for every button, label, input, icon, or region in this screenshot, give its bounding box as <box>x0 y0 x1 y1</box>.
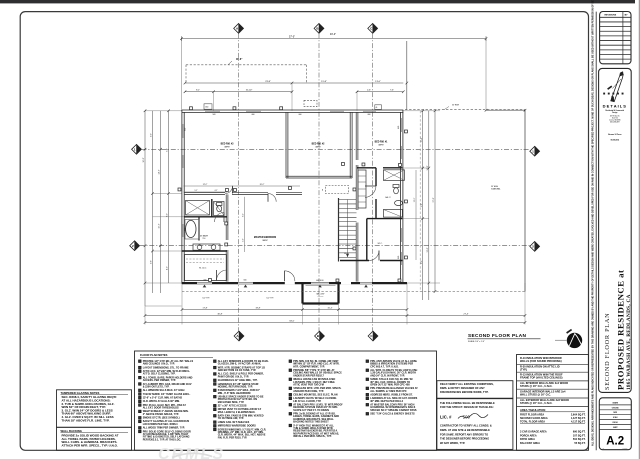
svg-text:4,117 SQ.FT.: 4,117 SQ.FT. <box>571 421 586 424</box>
svg-text:8'-2": 8'-2" <box>167 213 169 217</box>
svg-text:TAMPERED GLAZING NOTES: TAMPERED GLAZING NOTES <box>61 391 100 395</box>
svg-text:27'-4": 27'-4" <box>464 313 469 315</box>
svg-text:13'-6": 13'-6" <box>427 247 429 252</box>
svg-text:22" x 30" ATTIC ACCESS: 22" x 30" ATTIC ACCESS <box>218 405 247 408</box>
svg-text:ATTIC VENT PER 750 CFM: ATTIC VENT PER 750 CFM <box>293 383 324 386</box>
svg-text:2,664 SQ.FT.: 2,664 SQ.FT. <box>571 413 586 416</box>
svg-text:ALL WINDOW SILLS MAX. 44" HIGH: ALL WINDOW SILLS MAX. 44" HIGH <box>143 389 185 392</box>
svg-text:36" MIN. DEPTH PER R311.3: 36" MIN. DEPTH PER R311.3 <box>370 400 403 403</box>
svg-text:W.I.C.: W.I.C. <box>378 243 383 245</box>
svg-text:NOSING, RETURN ENDS, TYP.: NOSING, RETURN ENDS, TYP. <box>218 385 253 388</box>
svg-text:PATIO AREA: PATIO AREA <box>520 438 535 441</box>
svg-text:CLR. WIDTH AT HALLS 36" MIN.: CLR. WIDTH AT HALLS 36" MIN. <box>143 400 180 403</box>
svg-text:4'-2": 4'-2" <box>167 266 169 270</box>
svg-text:AND CEILINGS U.N.O., TYP.: AND CEILINGS U.N.O., TYP. <box>143 363 175 366</box>
svg-text:10'-8": 10'-8" <box>143 157 145 162</box>
svg-text:M. CLO.: M. CLO. <box>199 268 207 270</box>
svg-text:14'-2": 14'-2" <box>159 169 161 174</box>
svg-text:5'-6": 5'-6" <box>243 238 245 242</box>
svg-text:UNDER STAIR PER R302.7: UNDER STAIR PER R302.7 <box>293 374 324 377</box>
svg-text:ALL WOOD TRIM PER OWNER, TYP.: ALL WOOD TRIM PER OWNER, TYP. <box>143 427 185 430</box>
svg-text:INSTALL PER MFR. SPECS., TYP.: INSTALL PER MFR. SPECS., TYP. <box>293 435 332 438</box>
svg-text:PORCH AREA: PORCH AREA <box>520 434 537 437</box>
svg-text:LID AT EA. FLOOR, TYP.: LID AT EA. FLOOR, TYP. <box>293 400 321 403</box>
svg-text:AND BOTTOM 1/3 OF TANK, TYP.: AND BOTTOM 1/3 OF TANK, TYP. <box>218 369 257 372</box>
svg-text:BACKING NOTES THIS SHEET: BACKING NOTES THIS SHEET <box>293 421 329 424</box>
svg-text:7'-6": 7'-6" <box>390 90 394 92</box>
svg-text:46'-0": 46'-0" <box>330 34 336 36</box>
svg-text:16'-1/2": 16'-1/2" <box>246 90 253 92</box>
svg-text:TOTAL FLOOR AREA: TOTAL FLOOR AREA <box>520 421 545 424</box>
svg-text:FIRST FLOOR AREA: FIRST FLOOR AREA <box>520 413 544 416</box>
svg-text:REVISIONS: REVISIONS <box>605 15 617 17</box>
svg-text:TUB W/ SHWR. 1/4" TEMP. GLASS: TUB W/ SHWR. 1/4" TEMP. GLASS ENCL. <box>143 393 191 396</box>
svg-text:84'-0": 84'-0" <box>290 320 295 322</box>
svg-text:A.2: A.2 <box>606 436 624 448</box>
svg-text:55 SQ.FT.: 55 SQ.FT. <box>574 442 585 445</box>
svg-text:PER R302.5.1, TYP. AT THIS LOC: PER R302.5.1, TYP. AT THIS LOC. <box>143 438 182 441</box>
svg-text:30'-8": 30'-8" <box>218 313 223 315</box>
svg-text:107 SQ.FT.: 107 SQ.FT. <box>573 434 586 437</box>
svg-text:17'-8": 17'-8" <box>203 307 208 309</box>
svg-text:57'-0": 57'-0" <box>289 36 295 38</box>
svg-text:1865 WABASH AVE, REDLANDS, CA: 1865 WABASH AVE, REDLANDS, CA <box>626 294 632 390</box>
svg-text:9'-2": 9'-2" <box>151 133 153 137</box>
svg-text:AND 24" CLR. IN FRONT, TYP.: AND 24" CLR. IN FRONT, TYP. <box>370 374 405 377</box>
svg-text:12'-2": 12'-2" <box>414 197 416 202</box>
svg-text:8'-2": 8'-2" <box>243 213 245 217</box>
svg-text:504 SQ.FT.: 504 SQ.FT. <box>573 438 586 441</box>
svg-text:ADDRESS NBRS. VISIBLE FROM ST.: ADDRESS NBRS. VISIBLE FROM ST. <box>370 393 413 396</box>
svg-text:MIN., 6'-8" MIN. HEADROOM: MIN., 6'-8" MIN. HEADROOM <box>218 392 251 395</box>
svg-text:ENCLOSED SIDE, TYP.: ENCLOSED SIDE, TYP. <box>218 401 245 404</box>
svg-text:3'-4": 3'-4" <box>167 148 169 152</box>
svg-text:LAYOUT DIMENSIONS, STL. TO FRA: LAYOUT DIMENSIONS, STL. TO FRAME <box>143 366 189 369</box>
svg-text:13'-6" x 5'-0" CLR. MIN. AT BA: 13'-6" x 5'-0" CLR. MIN. AT BATHS <box>143 396 183 399</box>
svg-text:15'-8": 15'-8" <box>321 81 327 83</box>
svg-text:MAX. LENGTH, 2 ELBOWS MAX.: MAX. LENGTH, 2 ELBOWS MAX. <box>218 411 256 414</box>
svg-text:SECOND FLOOR AREA: SECOND FLOOR AREA <box>520 417 548 420</box>
svg-text:ALL SHWRS. & TUBS PER CPC: ALL SHWRS. & TUBS PER CPC <box>370 390 407 393</box>
svg-text:GUARDRAILS 42" HIGH MIN., TYP.: GUARDRAILS 42" HIGH MIN., TYP. <box>218 379 258 382</box>
svg-text:5'-8": 5'-8" <box>421 203 423 207</box>
svg-text:HTR. COMPARTMENT, TYP.: HTR. COMPARTMENT, TYP. <box>293 365 325 368</box>
svg-text:690 SQ.FT.: 690 SQ.FT. <box>573 430 586 433</box>
svg-text:9'-2": 9'-2" <box>196 90 200 92</box>
svg-text:12'-2": 12'-2" <box>203 184 208 186</box>
svg-text:SMOKE DTCTR. (SEE SYMBOL): SMOKE DTCTR. (SEE SYMBOL) <box>143 417 180 420</box>
svg-text:9'-0": 9'-0" <box>421 260 423 264</box>
svg-text:LOCATIONS PER SEC. R308.4: LOCATIONS PER SEC. R308.4 <box>143 423 178 426</box>
svg-text:GLAZED LOW-E, U-FACTOR .40 MAX: GLAZED LOW-E, U-FACTOR .40 MAX. <box>218 363 262 366</box>
svg-text:ALL IDEAS, DESIGNS, ARRANGEMEN: ALL IDEAS, DESIGNS, ARRANGEMENTS AND PLA… <box>592 0 595 446</box>
svg-text:15'-2": 15'-2" <box>328 307 333 309</box>
svg-text:BED RM. #1: BED RM. #1 <box>375 142 389 144</box>
svg-text:ATTACH PER MFR. SPECS., TYP. U: ATTACH PER MFR. SPECS., TYP. U.N.O. <box>62 444 118 448</box>
svg-text:9'-6": 9'-6" <box>151 260 153 264</box>
svg-text:3 CAR GARAGE AREA: 3 CAR GARAGE AREA <box>520 430 547 433</box>
svg-text:ALL EXT. DOOR THRESHOLDS: ALL EXT. DOOR THRESHOLDS <box>143 407 179 410</box>
svg-text:LIC. #: LIC. # <box>440 415 452 420</box>
svg-text:BED RM. #3: BED RM. #3 <box>221 144 235 146</box>
svg-text:SECOND FLOOR PLAN: SECOND FLOOR PLAN <box>468 333 526 338</box>
svg-text:MIRRORED WARDROBE DOORS: MIRRORED WARDROBE DOORS <box>218 425 256 428</box>
svg-text:ACCESS. PER OWNER, TYP.: ACCESS. PER OWNER, TYP. <box>143 379 176 382</box>
svg-text:SLOPE 1/4" PER FT. TO DRAIN: SLOPE 1/4" PER FT. TO DRAIN <box>293 409 329 412</box>
svg-text:PROPOSED RESIDENCE at: PROPOSED RESIDENCE at <box>616 270 626 390</box>
svg-text:TO OUTSIDE AIR, TYP.: TO OUTSIDE AIR, TYP. <box>218 417 244 420</box>
svg-text:ATT'D. SELF CLOSING, TYP.: ATT'D. SELF CLOSING, TYP. <box>143 373 176 376</box>
svg-text:37'-8": 37'-8" <box>433 197 435 202</box>
svg-text:2'-6": 2'-6" <box>367 90 371 92</box>
svg-text:10'-2": 10'-2" <box>159 223 161 228</box>
svg-text:CPC 603.4.7, TYP. U.N.O.: CPC 603.4.7, TYP. U.N.O. <box>370 365 399 368</box>
svg-text:WALL BACKING: WALL BACKING <box>61 429 82 433</box>
svg-text:LINEN CAB. W/ 5 SHELVES: LINEN CAB. W/ 5 SHELVES <box>218 421 250 424</box>
svg-text:PAINT GRADE U.N.O., TYP.: PAINT GRADE U.N.O., TYP. <box>218 375 250 378</box>
svg-text:D E T A I L S: D E T A I L S <box>603 104 627 109</box>
svg-text:SEE 'T-24' CALCS & ENERGY SHEE: SEE 'T-24' CALCS & ENERGY SHEETS <box>370 413 415 416</box>
svg-text:OPEN OUT 22" MIN. PER CPC 408: OPEN OUT 22" MIN. PER CPC 408 <box>370 383 410 386</box>
svg-text:CEILING MOUNTED, SEE ELEC. PLA: CEILING MOUNTED, SEE ELEC. PLAN <box>293 393 338 396</box>
svg-text:1,427 SQ.FT.: 1,427 SQ.FT. <box>571 417 586 420</box>
svg-text:23'-8": 23'-8" <box>265 81 271 83</box>
svg-text:SECOND FLOOR PLAN: SECOND FLOOR PLAN <box>604 313 611 390</box>
svg-text:& 220V OUTLETS, TYP.: & 220V OUTLETS, TYP. <box>143 385 170 388</box>
svg-text:2" ABOVE PAVED AREAS, TYP.: 2" ABOVE PAVED AREAS, TYP. <box>143 413 179 416</box>
svg-text:19'-8": 19'-8" <box>256 307 261 309</box>
svg-text:FIN. FLR. PER R310, TYP.: FIN. FLR. PER R310, TYP. <box>218 436 248 439</box>
svg-text:BALCONY AREA: BALCONY AREA <box>520 442 540 445</box>
svg-text:ANCHOR PER CODE, TYP.: ANCHOR PER CODE, TYP. <box>293 390 324 393</box>
svg-text:20'-2": 20'-2" <box>260 184 265 186</box>
svg-text:THAN 18" ABOVE FLR. LINE, TYP.: THAN 18" ABOVE FLR. LINE, TYP. <box>62 418 110 422</box>
svg-text:11'-4": 11'-4" <box>421 137 423 142</box>
svg-text:BED RM. #2: BED RM. #2 <box>312 144 326 146</box>
svg-text:SPACED SO 4" SPHERE CANNOT PAS: SPACED SO 4" SPHERE CANNOT PASS <box>370 409 417 412</box>
svg-text:13'-0": 13'-0" <box>375 81 381 83</box>
